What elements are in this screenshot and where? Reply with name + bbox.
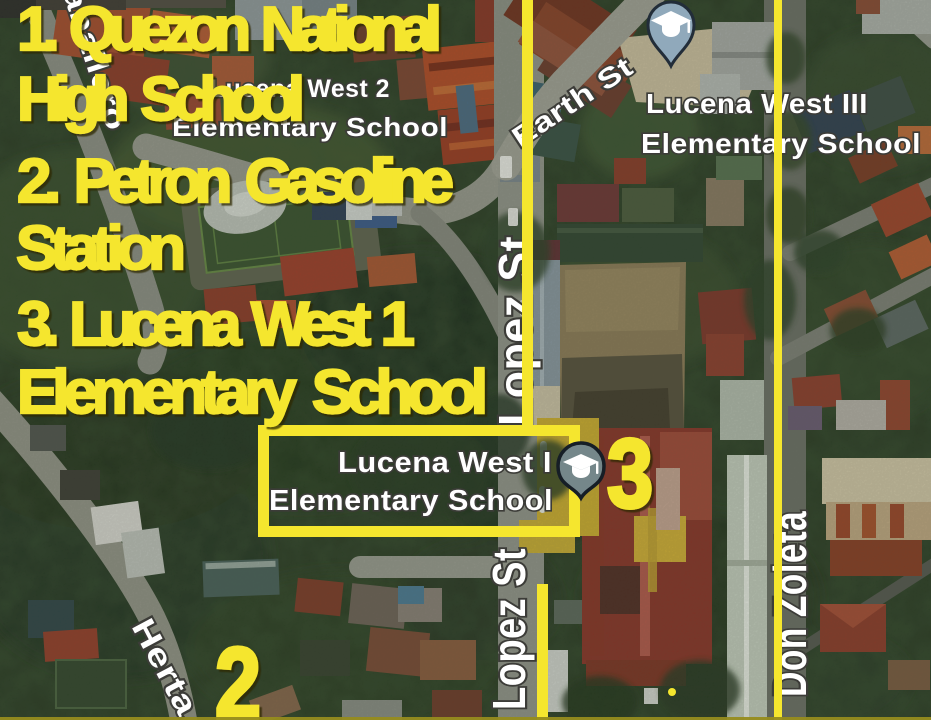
- svg-text:Lucena West III: Lucena West III: [646, 88, 868, 119]
- svg-text:Lucena West I: Lucena West I: [338, 447, 552, 479]
- svg-text:Don Zoleta: Don Zoleta: [764, 511, 816, 697]
- svg-text:High School: High School: [17, 65, 305, 134]
- svg-text:Elementary School: Elementary School: [269, 485, 553, 517]
- svg-text:Elementary School: Elementary School: [17, 358, 488, 427]
- svg-text:2: 2: [215, 628, 261, 720]
- svg-text:1. Quezon National: 1. Quezon National: [17, 0, 442, 64]
- svg-text:2. Petron Gasoline: 2. Petron Gasoline: [17, 147, 454, 216]
- svg-text:3. Lucena West 1: 3. Lucena West 1: [17, 290, 415, 359]
- svg-text:Station: Station: [16, 214, 186, 283]
- svg-text:Lopez St: Lopez St: [483, 548, 535, 710]
- svg-text:3: 3: [607, 419, 653, 528]
- svg-text:Lopez St: Lopez St: [489, 236, 541, 426]
